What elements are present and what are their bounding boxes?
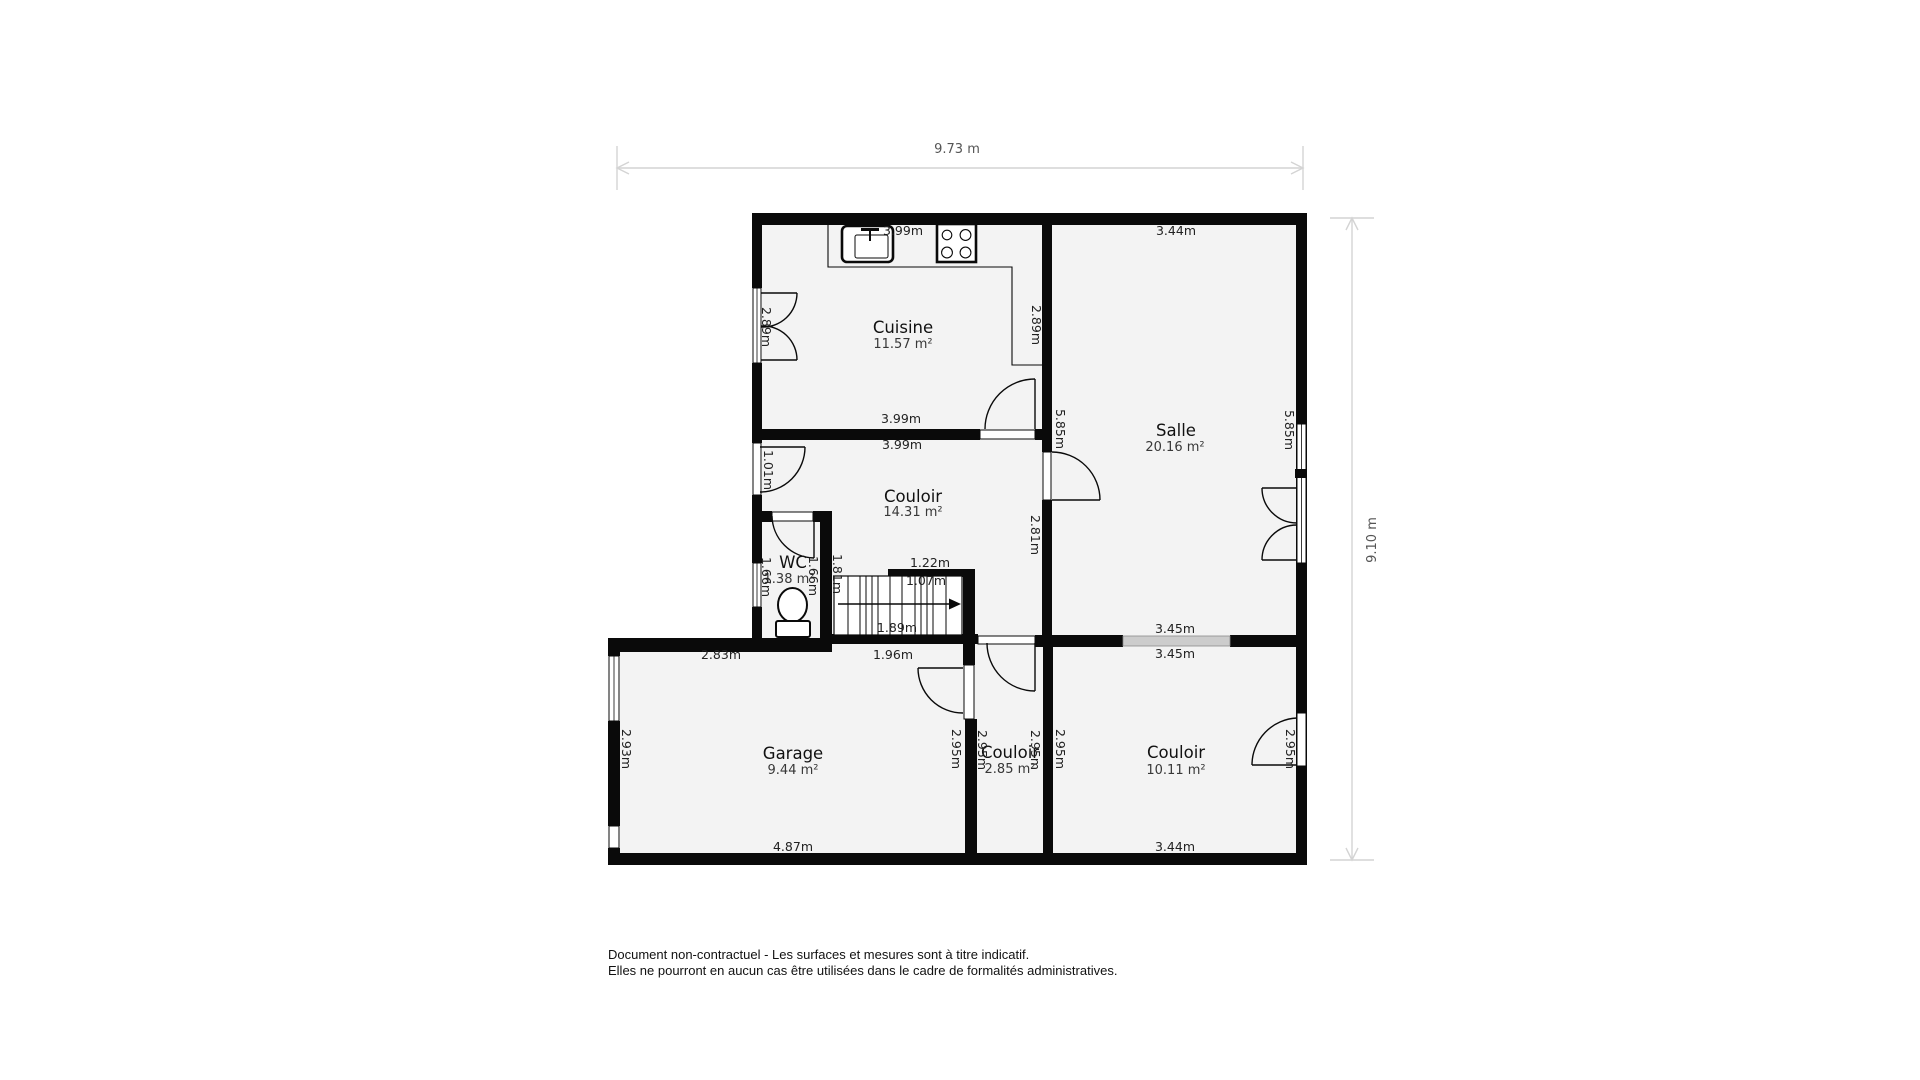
dim-garage-left: 2.93m [619,729,634,769]
dim-escalier-bottom: 1.89m [877,620,917,635]
wall-left-upper-1 [752,213,762,288]
dim-garage-right: 2.95m [949,729,964,769]
toilet-bowl [778,588,807,622]
dim-couloir-entree-bottom: 3.44m [1155,839,1195,854]
room-area-couloir-entree: 10.11 m² [1146,763,1205,778]
dim-petit-couloir-left: 2.95m [975,730,990,770]
room-area-garage: 9.44 m² [768,763,819,778]
dim-garage-bottom: 4.87m [773,839,813,854]
dim-couloir-centre-right: 2.81m [1028,515,1043,555]
dim-salle-bottom: 3.45m [1155,621,1195,636]
room-name-wc: WC [779,553,807,572]
dim-salle-top: 3.44m [1156,223,1196,238]
dim-salle-right: 5.85m [1282,410,1297,450]
dim-couloir-centre-top: 3.99m [882,437,922,452]
mullion-french-window-salle [1295,469,1307,478]
disclaimer-line-1: Document non-contractuel - Les surfaces … [608,947,1029,962]
dim-cuisine-right: 2.89m [1029,305,1044,345]
threshold-garage-door [964,665,974,719]
room-name-cuisine: Cuisine [873,318,933,337]
threshold-cuisine-door [980,430,1035,439]
threshold-wc-door [772,512,813,521]
wall-couloir-salle-1 [1042,440,1052,452]
disclaimer-line-2: Elles ne pourront en aucun cas être util… [608,963,1117,978]
floor-plan-drawing: 9.73 m 9.10 m Cuisine 11.57 m² 3.99m 3.9… [0,0,1920,1080]
disclaimer: Document non-contractuel - Les surfaces … [608,947,1117,978]
wall-cuisine-door-stub [1035,429,1042,440]
wall-left-garage-3 [608,848,620,865]
wall-couloir-entree-top-1 [1053,635,1123,647]
dim-couloir-entree-left: 2.95m [1053,729,1068,769]
wall-left-upper-3 [752,495,762,563]
dim-couloir-entree-top: 3.45m [1155,646,1195,661]
dim-cuisine-top: 3.99m [883,223,923,238]
room-area-petit-couloir: 2.85 m² [985,762,1036,777]
dim-cuisine-bottom: 3.99m [881,411,921,426]
floor-plan-page: 9.73 m 9.10 m Cuisine 11.57 m² 3.99m 3.9… [0,0,1920,1080]
dim-wc-left: 1.66m [759,557,774,597]
room-name-couloir-centre: Couloir [884,487,942,506]
room-name-couloir-entree: Couloir [1147,743,1205,762]
dim-escalier-length: 1.07m [906,573,946,588]
wall-stairs-right-1 [963,569,975,665]
dim-salle-left: 5.85m [1053,409,1068,449]
window-garage-lower [609,826,619,848]
wall-top [752,213,1307,225]
wall-couloir-entree-top-2 [1230,635,1297,647]
overall-height-label: 9.10 m [1365,517,1380,563]
dim-couloir-entree-right: 2.95m [1283,729,1298,769]
dim-garage-top-right: 1.96m [873,647,913,662]
stove-icon [937,224,976,262]
wall-couloirs-divider [1043,635,1053,857]
overall-width-label: 9.73 m [934,142,980,157]
wall-bottom [608,853,1307,865]
threshold-petit-couloir-door [978,636,1035,644]
wall-cuisine-couloir [752,429,980,440]
room-area-salle: 20.16 m² [1145,440,1204,455]
threshold-salle-door [1043,452,1051,500]
wall-left-garage-2 [608,721,620,826]
room-area-cuisine: 11.57 m² [873,337,932,352]
toilet-icon [776,588,810,637]
sink-basin [855,235,888,258]
dim-escalier-top: 1.22m [910,555,950,570]
dim-garage-top-left: 2.83m [701,647,741,662]
room-area-couloir-centre: 14.31 m² [883,505,942,520]
wall-petit-door-stub [1035,635,1053,647]
threshold-entry-left-door [753,443,761,495]
dim-couloir-centre-edge: 1.81m [830,554,845,594]
dim-wc-right: 1.66m [806,556,821,596]
wall-wc-top-1 [762,511,772,522]
dim-cuisine-left: 2.89m [759,307,774,347]
dim-couloir-centre-left: 1.01m [761,450,776,490]
dim-petit-couloir-right: 2.95m [1028,730,1043,770]
toilet-tank [776,621,810,637]
window-couloir-entree [1123,636,1230,646]
room-name-garage: Garage [763,744,823,763]
room-name-salle: Salle [1156,421,1196,440]
